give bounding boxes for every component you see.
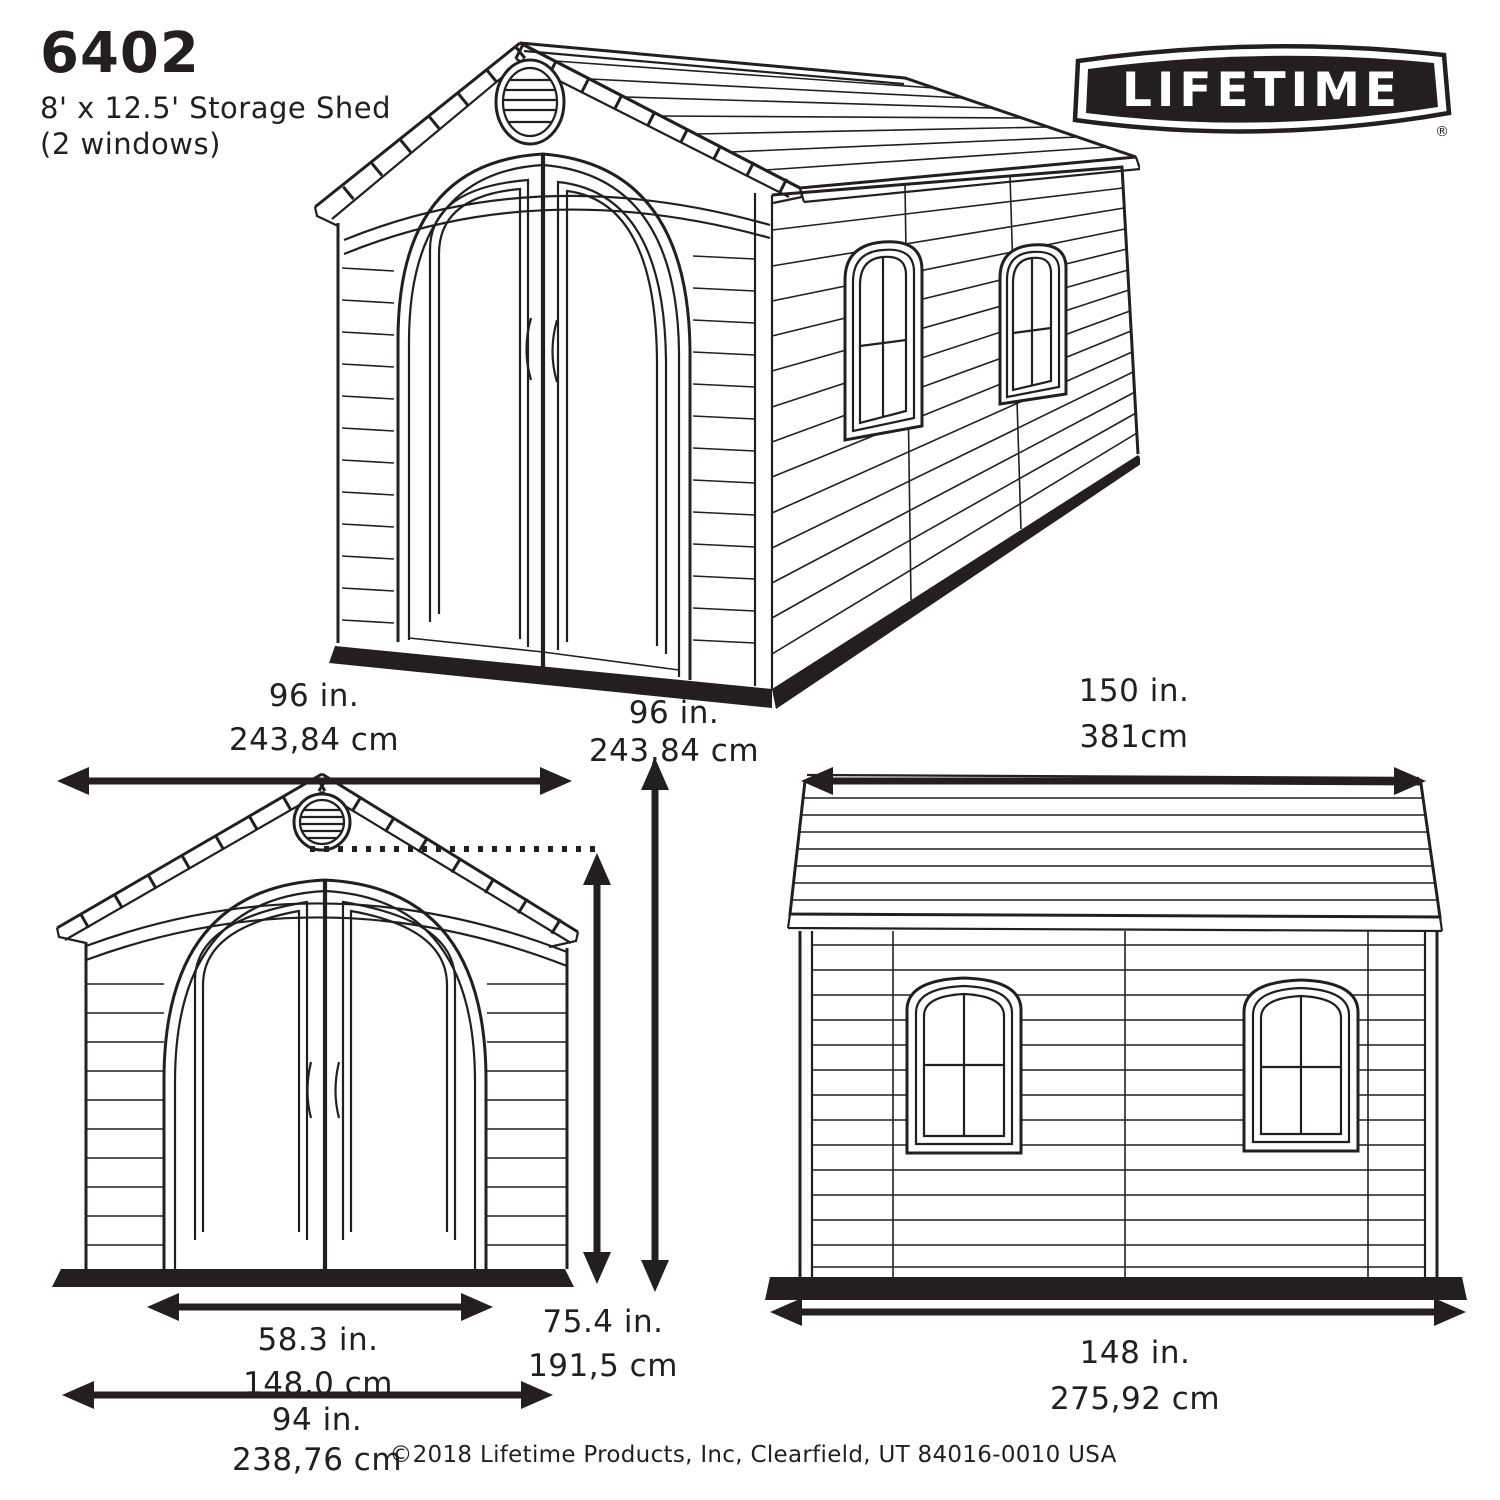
side-window-left [907, 978, 1021, 1153]
arrow-overall-height [641, 758, 669, 1292]
gable-vent-3d [496, 60, 564, 144]
label-front-width: 96 in. 243,84 cm [229, 674, 399, 762]
copyright-notice: ©2018 Lifetime Products, Inc, Clearfield… [389, 1442, 1116, 1468]
label-base-side-length: 148 in. 275,92 cm [1050, 1330, 1220, 1422]
arrow-door-height [583, 853, 611, 1284]
side-window-front-3d [845, 242, 922, 440]
base-side [765, 1277, 1467, 1300]
shed-front-view [45, 770, 585, 1300]
label-base-front-width: 94 in. 238,76 cm [232, 1400, 402, 1480]
label-overall-height: 96 in. 243,84 cm [589, 694, 759, 770]
side-window-right [1244, 980, 1358, 1151]
shed-side-view [755, 770, 1470, 1305]
gable-vent-front [294, 794, 350, 850]
label-side-depth: 150 in. 381cm [1079, 668, 1190, 760]
label-door-width: 58.3 in. 148,0 cm [243, 1318, 393, 1406]
shed-3d-view [300, 30, 1140, 710]
logo-brand-text: LIFETIME [1122, 63, 1402, 118]
label-door-height: 75.4 in. 191,5 cm [528, 1300, 678, 1388]
side-window-back-3d [1000, 245, 1066, 404]
base-front [52, 1269, 574, 1287]
spec-sheet: 6402 8' x 12.5' Storage Shed (2 windows)… [0, 0, 1500, 1500]
registered-trademark-icon: ® [1435, 124, 1449, 140]
